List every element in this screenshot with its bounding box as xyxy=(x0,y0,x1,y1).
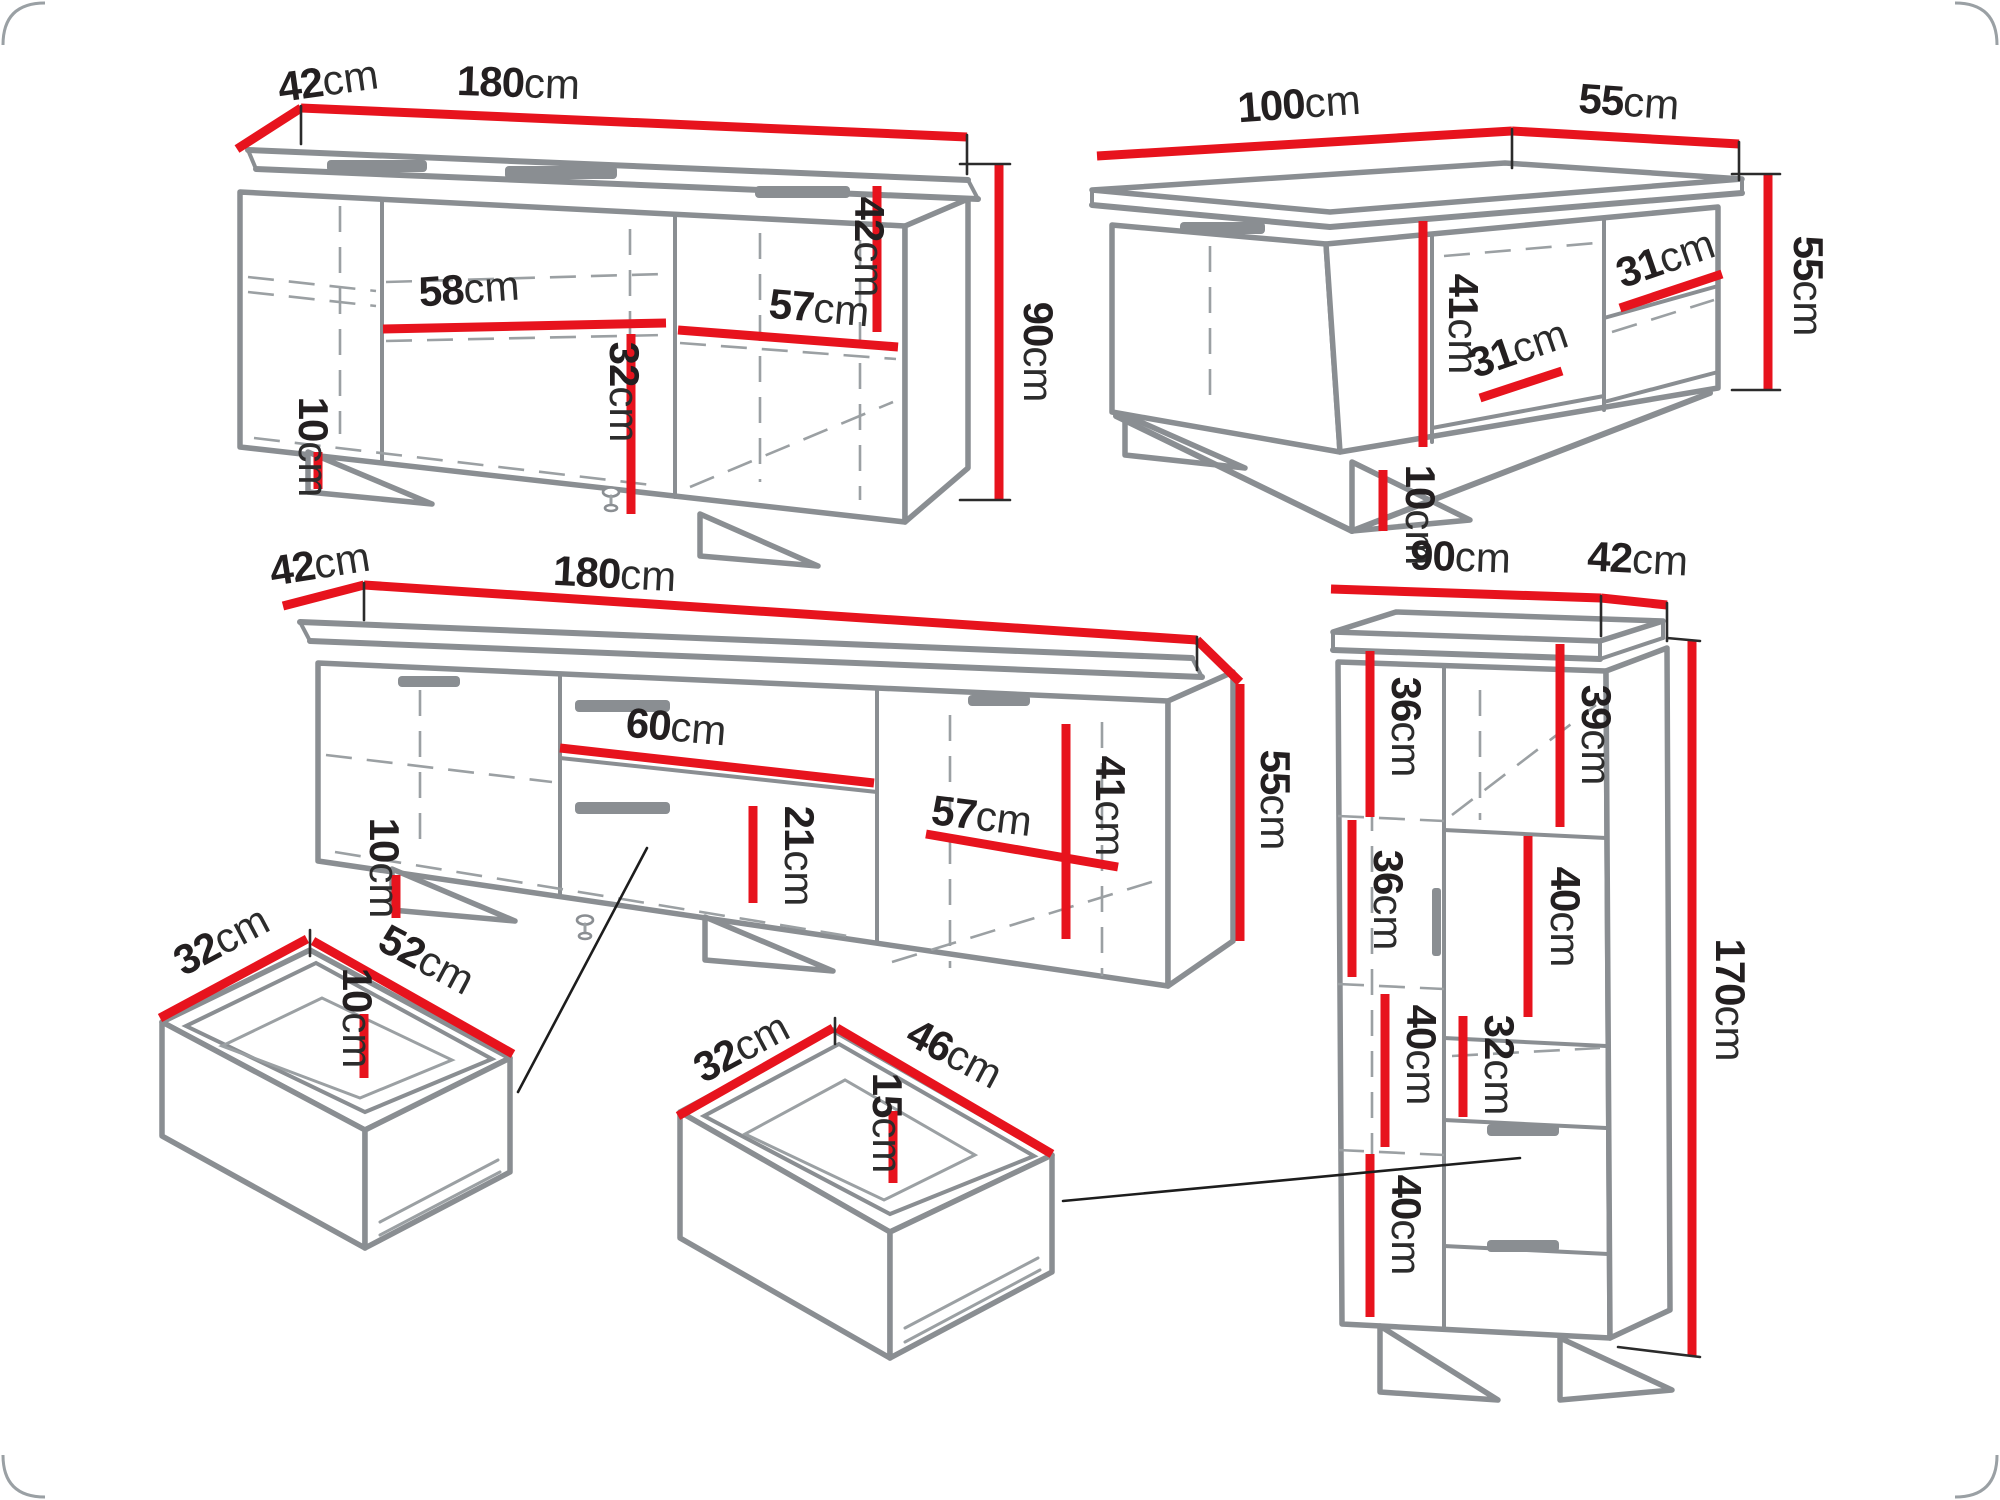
tall-cabinet-compartment-3-label: 36cm xyxy=(1365,850,1412,951)
sideboard-lower-height-label: 32cm xyxy=(601,342,648,443)
tv-stand-drawer-width-label: 60cm xyxy=(624,699,728,755)
furniture-dimensions-diagram: 42cm 180cm 90cm 58cm 57cm 42cm 32cm 10cm… xyxy=(0,0,2000,1500)
sideboard-depth-label: 42cm xyxy=(275,50,381,111)
tall-cabinet-compartment-4-label: 40cm xyxy=(1542,867,1589,968)
coffee-table-width-label: 100cm xyxy=(1236,76,1362,131)
sideboard-leg-height-label: 10cm xyxy=(290,397,337,498)
tv-stand-width-label: 180cm xyxy=(552,547,677,600)
tv-stand-height-label: 55cm xyxy=(1252,750,1299,851)
adjustable-foot-icon xyxy=(577,916,593,940)
adjustable-foot-icon xyxy=(603,488,619,512)
tall-cabinet-compartment-6-label: 32cm xyxy=(1476,1015,1523,1116)
sideboard-drawing xyxy=(237,106,1010,566)
sideboard-height-label: 90cm xyxy=(1015,302,1062,403)
sideboard-width-label: 180cm xyxy=(456,57,581,108)
tv-stand-inner-height-label: 41cm xyxy=(1087,756,1134,857)
tall-cabinet-compartment-5-label: 40cm xyxy=(1398,1005,1445,1106)
tv-stand-leg-height-label: 10cm xyxy=(361,818,408,919)
tall-cabinet-compartment-7-label: 40cm xyxy=(1383,1175,1430,1276)
tall-cabinet-depth-label: 42cm xyxy=(1586,532,1689,584)
tall-cabinet-height-label: 170cm xyxy=(1707,938,1754,1061)
large-drawer-height-label: 15cm xyxy=(864,1073,911,1174)
corner-decoration xyxy=(3,1455,45,1497)
diagram-drawing: 42cm 180cm 90cm 58cm 57cm 42cm 32cm 10cm… xyxy=(0,0,2000,1500)
corner-decoration xyxy=(3,3,45,45)
sideboard-shelf-left-label: 58cm xyxy=(417,262,521,316)
corner-decoration xyxy=(1955,1455,1997,1497)
corner-decoration xyxy=(1955,3,1997,45)
tall-cabinet-width-label: 90cm xyxy=(1409,531,1511,581)
sideboard-compartment-height-label: 42cm xyxy=(846,197,893,298)
coffee-table-height-label: 55cm xyxy=(1785,236,1832,337)
tall-cabinet-compartment-2-label: 39cm xyxy=(1573,685,1620,786)
small-drawer-height-label: 10cm xyxy=(334,968,381,1069)
coffee-table-depth-label: 55cm xyxy=(1577,75,1681,129)
tv-stand-drawer-height-label: 21cm xyxy=(776,806,823,907)
tall-cabinet-compartment-1-label: 36cm xyxy=(1383,677,1430,778)
